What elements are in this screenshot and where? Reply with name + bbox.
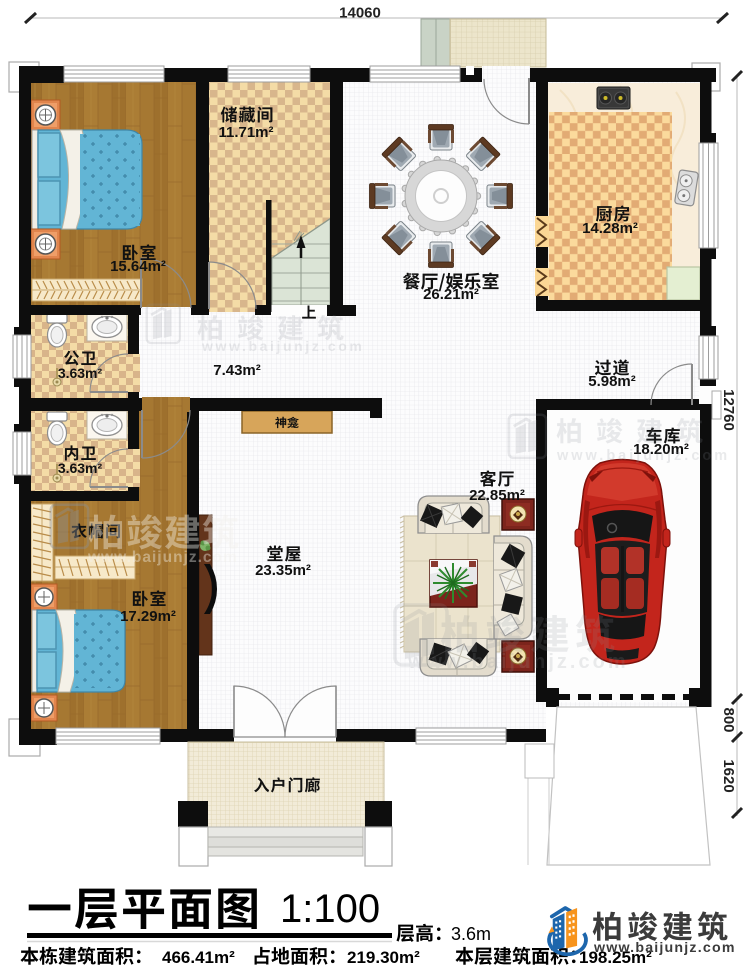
svg-text:219.30m²: 219.30m² bbox=[347, 948, 420, 967]
svg-text:1620: 1620 bbox=[720, 759, 737, 792]
svg-text:www.baijunjz.com: www.baijunjz.com bbox=[201, 338, 364, 354]
svg-text:17.29m²: 17.29m² bbox=[120, 608, 176, 625]
svg-text:466.41m²: 466.41m² bbox=[162, 948, 235, 967]
svg-text:15.64m²: 15.64m² bbox=[110, 258, 166, 275]
svg-text:26.21m²: 26.21m² bbox=[423, 286, 479, 303]
svg-text:800: 800 bbox=[720, 707, 737, 732]
svg-text:14.28m²: 14.28m² bbox=[582, 220, 638, 237]
svg-text:22.85m²: 22.85m² bbox=[469, 487, 525, 504]
svg-text:3.63m²: 3.63m² bbox=[58, 460, 103, 476]
svg-text:3.6m: 3.6m bbox=[451, 924, 491, 944]
svg-text:5.98m²: 5.98m² bbox=[588, 373, 636, 390]
svg-text:www.baijunjz.com: www.baijunjz.com bbox=[556, 448, 730, 464]
svg-text:1:100: 1:100 bbox=[280, 887, 380, 931]
svg-text:23.35m²: 23.35m² bbox=[255, 562, 311, 579]
svg-text:3.63m²: 3.63m² bbox=[58, 365, 103, 381]
svg-text:www.baijunjz.com: www.baijunjz.com bbox=[407, 651, 629, 673]
svg-text:14060: 14060 bbox=[339, 5, 381, 22]
svg-text:www.baijunjz.com: www.baijunjz.com bbox=[593, 940, 736, 956]
svg-text:11.71m²: 11.71m² bbox=[218, 124, 273, 141]
svg-text:12760: 12760 bbox=[720, 389, 737, 431]
svg-text:www.baijunjz.com: www.baijunjz.com bbox=[87, 549, 238, 566]
svg-text:7.43m²: 7.43m² bbox=[213, 362, 261, 379]
